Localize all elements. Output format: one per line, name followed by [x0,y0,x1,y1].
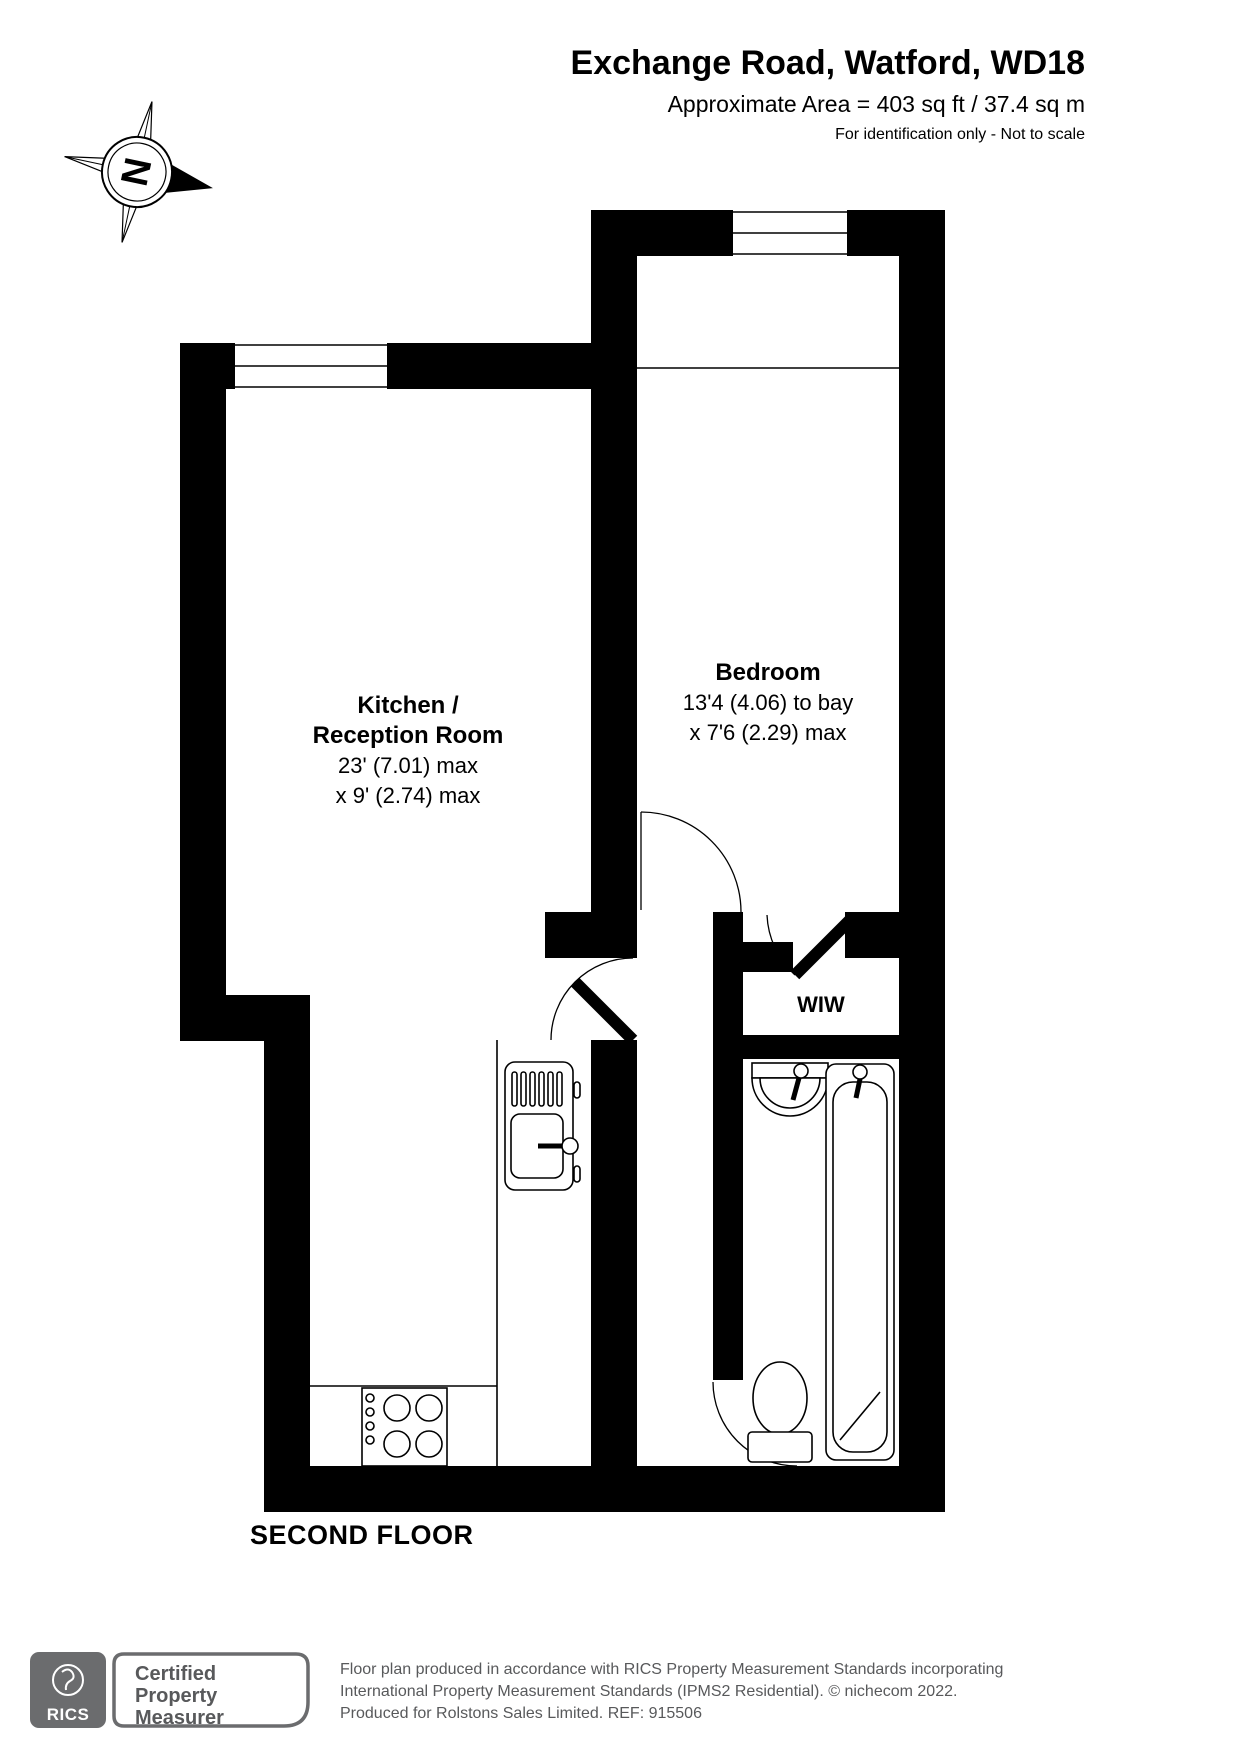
bedroom-dim-line1: 13'4 (4.06) to bay [683,690,854,715]
bay-window [733,210,847,256]
disclaimer: Floor plan produced in accordance with R… [340,1661,1003,1722]
bedroom-name: Bedroom [715,659,820,686]
disclaimer-line3: Produced for Rolstons Sales Limited. REF… [340,1705,702,1722]
compass-north-icon: N [50,86,227,258]
bedroom-door [641,812,741,912]
kitchen-dim-line2: x 9' (2.74) max [336,783,481,808]
kitchen-window [235,343,387,389]
kitchen-door [551,958,633,1040]
stove-icon [362,1388,447,1466]
badge-line3: Measurer [135,1707,224,1729]
basin-icon [752,1063,828,1116]
footer: RICS Certified Property Measurer Floor p… [30,1652,1003,1729]
disclaimer-line1: Floor plan produced in accordance with R… [340,1661,1003,1678]
disclaimer-line2: International Property Measurement Stand… [340,1683,957,1700]
wiw-label: WIW [797,992,845,1017]
identification-note: For identification only - Not to scale [835,126,1085,143]
certified-measurer-badge: Certified Property Measurer [114,1654,308,1729]
header: Exchange Road, Watford, WD18 Approximate… [571,44,1086,143]
bedroom-dim-line2: x 7'6 (2.29) max [689,720,846,745]
kitchen-label: Kitchen / Reception Room 23' (7.01) max … [313,692,504,808]
badge-line1: Certified [135,1663,216,1685]
rics-logo: RICS [30,1652,106,1728]
rics-logo-text: RICS [47,1705,90,1724]
toilet-icon [748,1362,812,1462]
kitchen-name-line1: Kitchen / [357,692,459,719]
kitchen-name-line2: Reception Room [313,722,504,749]
floorplan-canvas: Exchange Road, Watford, WD18 Approximate… [0,0,1241,1755]
bedroom-label: Bedroom 13'4 (4.06) to bay x 7'6 (2.29) … [683,659,854,745]
approximate-area: Approximate Area = 403 sq ft / 37.4 sq m [668,91,1085,117]
kitchen-dim-line1: 23' (7.01) max [338,753,478,778]
floor-label: SECOND FLOOR [250,1520,474,1550]
badge-line2: Property [135,1685,218,1707]
kitchen-sink-icon [505,1062,580,1190]
bathtub-icon [826,1064,894,1460]
page-title: Exchange Road, Watford, WD18 [571,44,1085,82]
